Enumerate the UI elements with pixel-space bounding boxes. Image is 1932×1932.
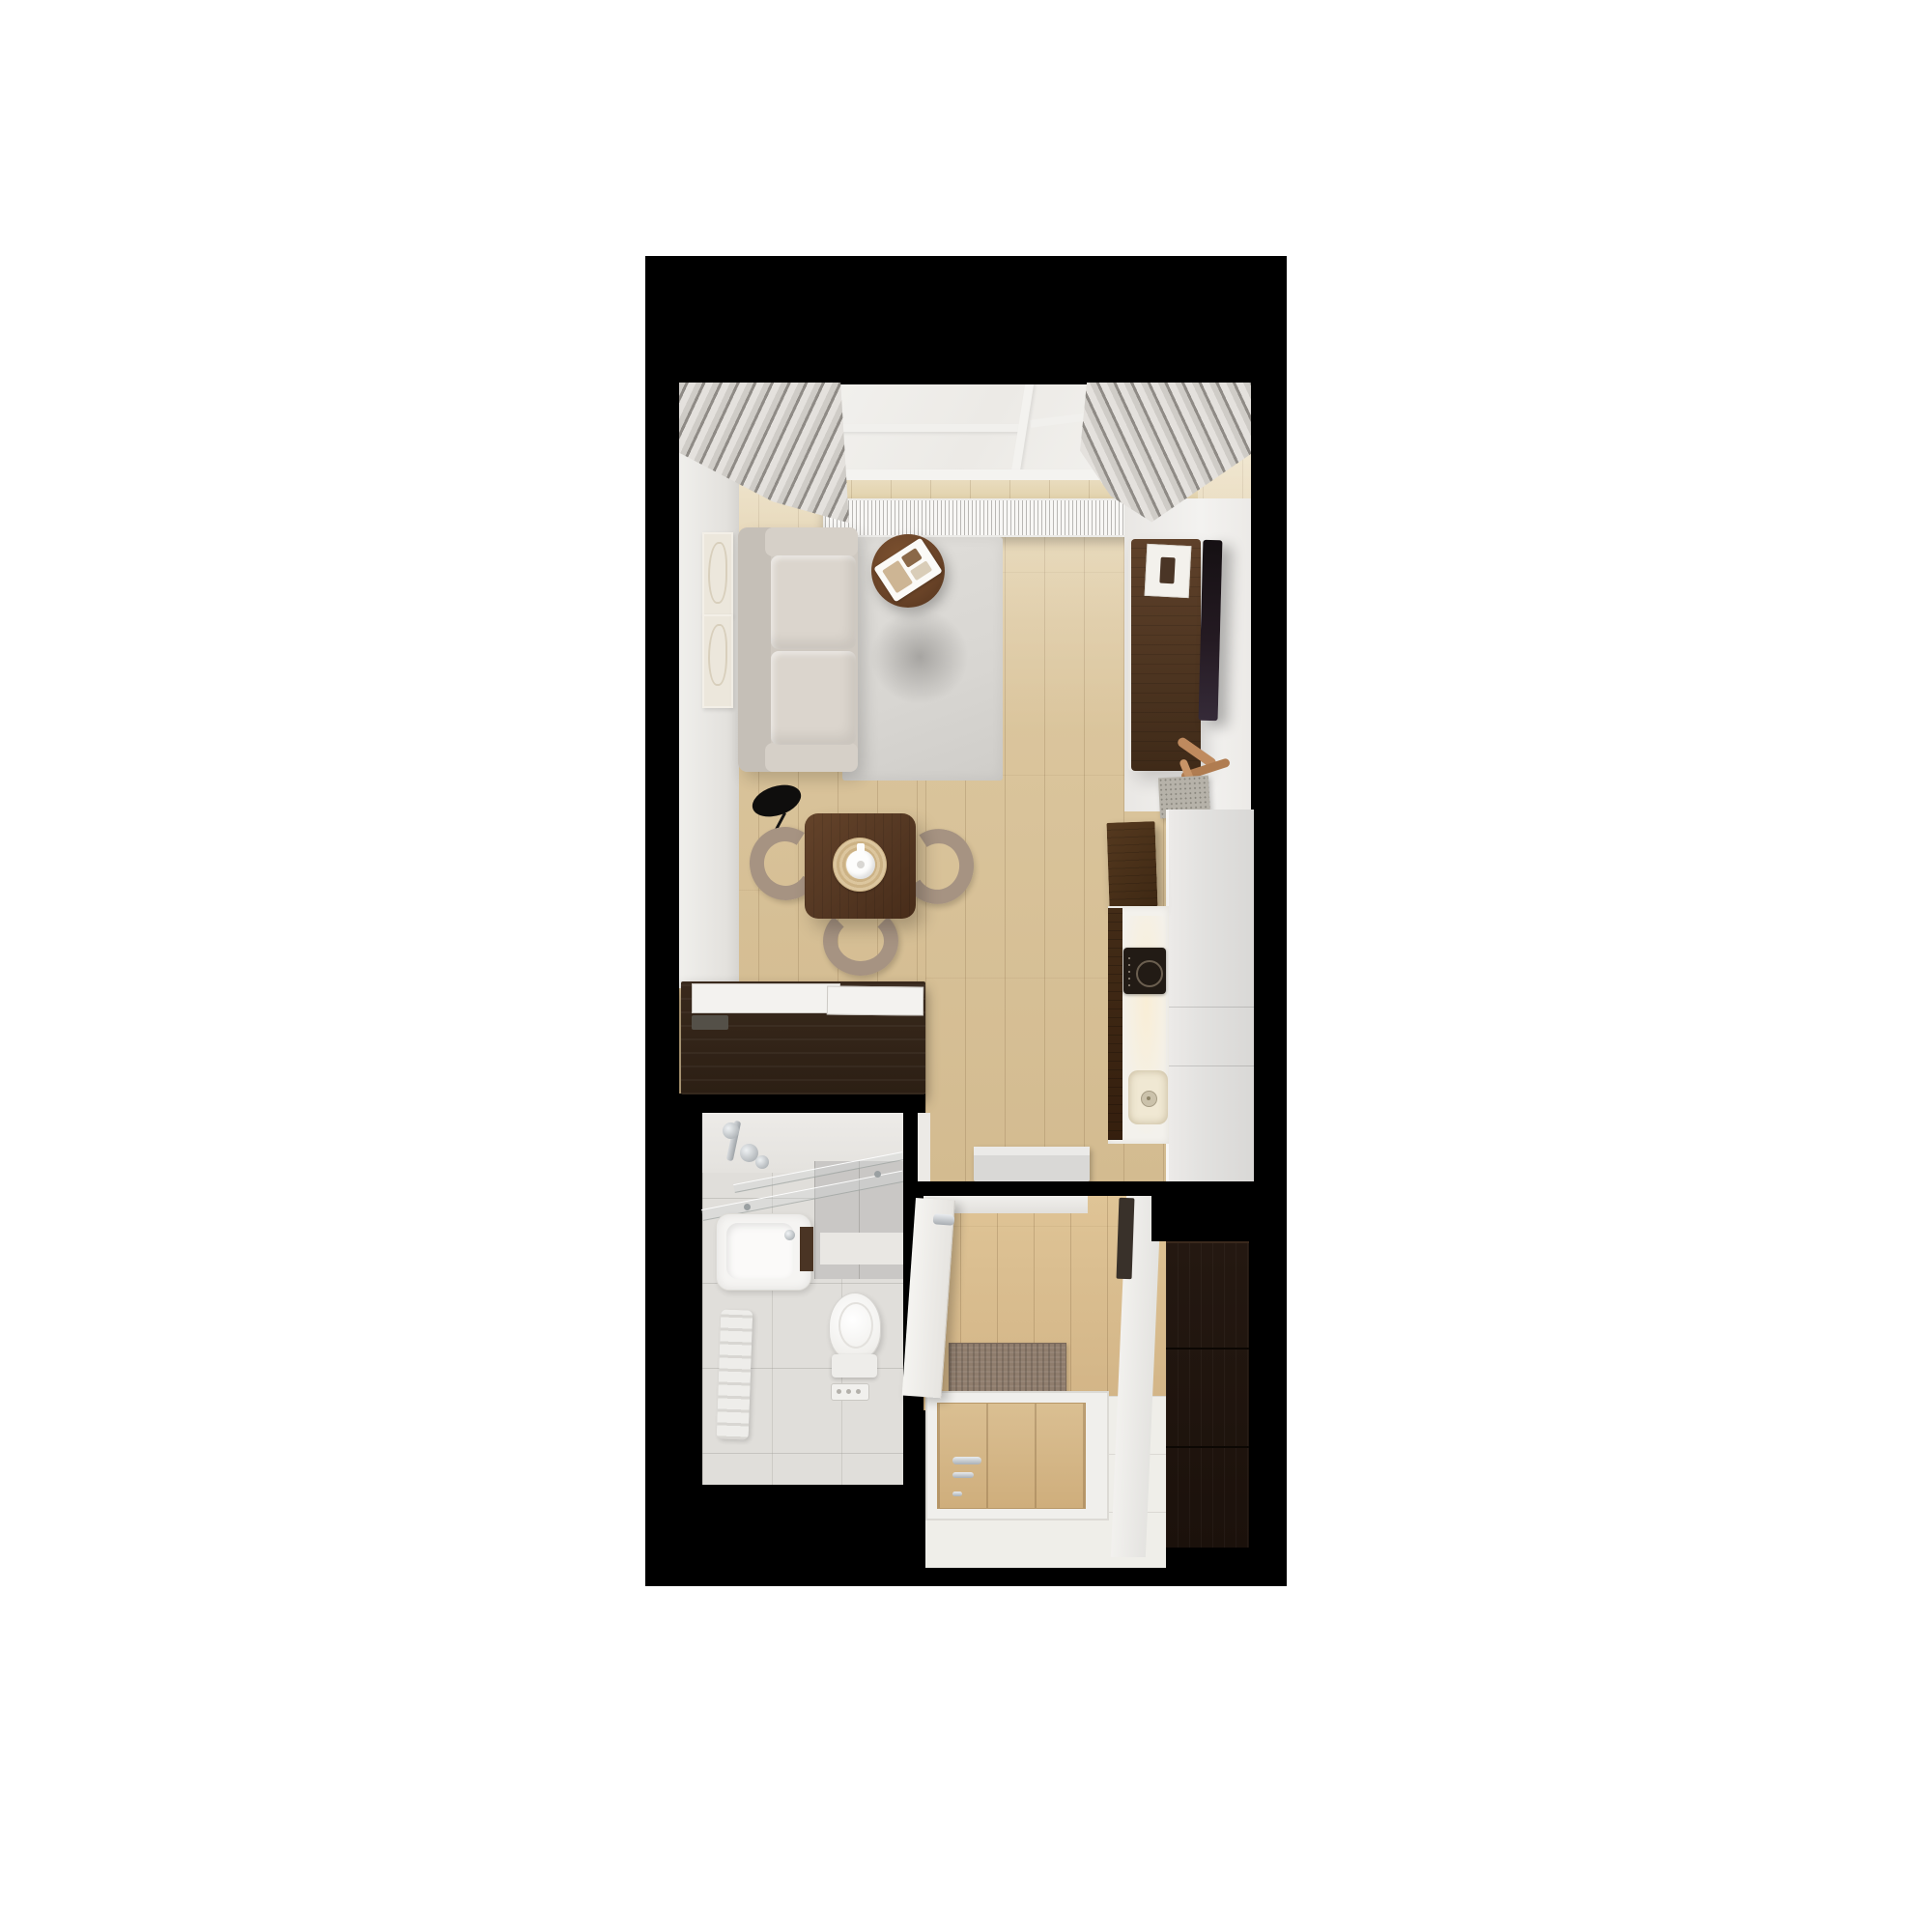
- washbasin: [716, 1213, 811, 1291]
- coffee-table-tray: [873, 538, 943, 603]
- teapot-spout: [857, 843, 865, 853]
- counter-seam: [1169, 1065, 1254, 1066]
- door-handle-icon: [952, 1457, 981, 1464]
- wardrobe-seam: [1166, 1446, 1249, 1448]
- sofa-armrest-bottom: [765, 743, 858, 772]
- counter-run-right-wall: [1166, 810, 1254, 1181]
- cooktop-controls: [1128, 955, 1130, 986]
- sideboard-top-panel-right: [827, 985, 923, 1015]
- teapot-lid: [857, 861, 865, 868]
- toilet-bowl: [829, 1293, 881, 1360]
- artwork-frame-1: [702, 532, 733, 616]
- artwork-abstract-shape: [708, 624, 727, 686]
- hall-wall-notch: [1151, 1196, 1251, 1241]
- sofa-cushion-2: [771, 651, 856, 745]
- washbasin-bowl: [726, 1223, 794, 1279]
- towel-radiator: [717, 1309, 753, 1439]
- basin-tap: [784, 1230, 795, 1240]
- hall-mirror: [1117, 1198, 1135, 1280]
- coffee-table-shadow: [852, 591, 987, 723]
- bathroom-door-handle-icon: [933, 1213, 955, 1226]
- wardrobe-seam: [1166, 1348, 1249, 1350]
- kitchen-tall-cabinet: [1106, 821, 1157, 908]
- door-hinge-icon: [952, 1492, 962, 1496]
- tv-cabinet-decor: [1145, 544, 1192, 598]
- wall-face-strip: [918, 1113, 930, 1181]
- teapot: [846, 850, 875, 879]
- sideboard: [681, 981, 925, 1094]
- sofa-armrest-top: [765, 527, 858, 556]
- floor-drain: [831, 1383, 869, 1401]
- kitchen-sink: [1128, 1070, 1168, 1124]
- counter-seam: [1169, 1007, 1254, 1008]
- sofa-backrest: [738, 527, 771, 772]
- kitchen-counter-wood-edge: [1108, 908, 1122, 1140]
- glass-clamp-icon: [744, 1204, 751, 1210]
- artwork-frame-2: [702, 614, 733, 708]
- decor-object: [1159, 557, 1175, 584]
- wardrobe: [1166, 1241, 1249, 1548]
- cooktop: [1123, 948, 1166, 994]
- floor-plan-render: [0, 0, 1932, 1932]
- sideboard-handle: [692, 1015, 728, 1030]
- window-frame-bar-icon: [814, 424, 1023, 432]
- door-lock-icon: [952, 1472, 974, 1478]
- bathroom-wall-panel: [820, 1233, 903, 1264]
- artwork-abstract-shape: [708, 542, 727, 604]
- coffee-table: [871, 534, 945, 608]
- glass-clamp-icon: [874, 1171, 881, 1178]
- shower-faucet-knob: [755, 1155, 769, 1169]
- toilet-base: [832, 1354, 877, 1378]
- vanity-wood-edge: [800, 1227, 813, 1271]
- bench-block: [974, 1147, 1090, 1181]
- sofa-cushion-1: [771, 555, 856, 649]
- shower-faucet-knob: [723, 1122, 739, 1139]
- sideboard-top-panel-left: [692, 983, 840, 1013]
- bench-top: [974, 1147, 1090, 1155]
- cooktop-burner-ring: [1136, 960, 1163, 987]
- sofa: [738, 527, 858, 772]
- sink-drain: [1141, 1091, 1157, 1107]
